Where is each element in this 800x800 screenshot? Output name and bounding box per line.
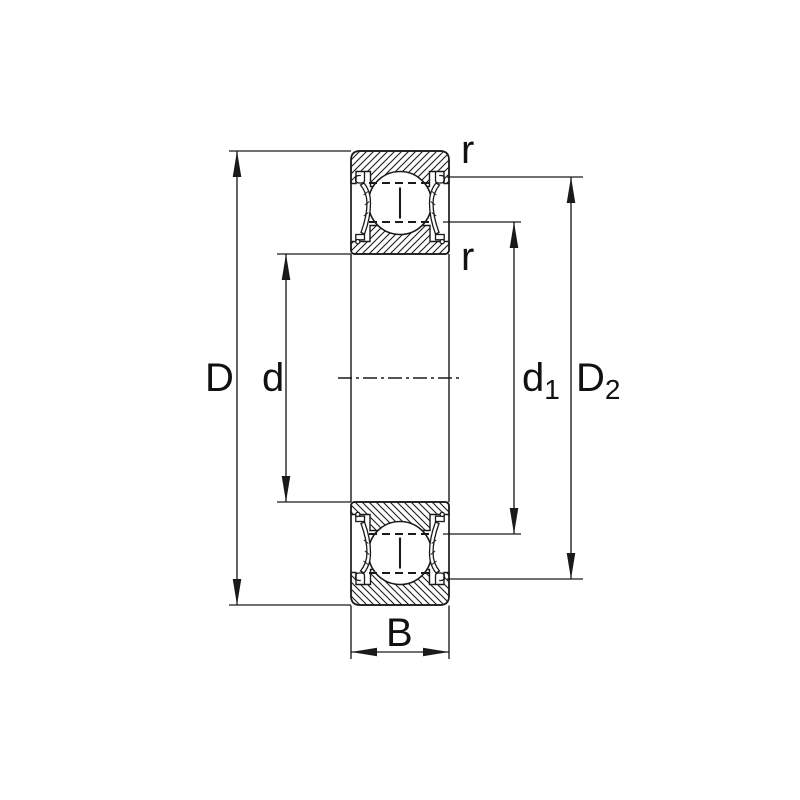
label-r-outer: r <box>461 128 474 172</box>
background <box>0 0 800 800</box>
dim-label-D: D <box>205 356 234 400</box>
dim-label-d1-sub: 1 <box>544 374 560 405</box>
dim-label-d1-base: d <box>522 356 544 400</box>
label-r-inner: r <box>461 235 474 279</box>
bearing-cross-section-diagram: D d d1 D2 B r r <box>0 0 800 800</box>
dim-label-d: d <box>262 356 284 400</box>
bearing-top-section <box>351 151 449 254</box>
dim-label-D2-base: D <box>576 356 605 400</box>
dim-label-B: B <box>386 611 413 655</box>
dim-label-D2-sub: 2 <box>605 374 621 405</box>
bearing-bottom-section <box>351 502 449 605</box>
bearing-diagram-page: D d d1 D2 B r r <box>0 0 800 800</box>
